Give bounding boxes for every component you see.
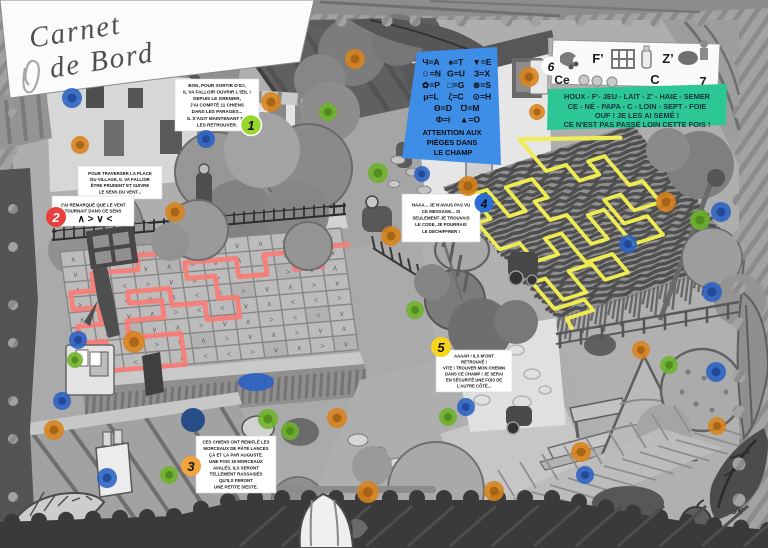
svg-text:OUF ! JE LES AI SEMÉ !: OUF ! JE LES AI SEMÉ ! xyxy=(595,111,679,120)
svg-text:℧=M: ℧=M xyxy=(461,103,480,113)
svg-text:∧: ∧ xyxy=(271,330,277,339)
svg-text:∧: ∧ xyxy=(71,255,77,264)
svg-text:<: < xyxy=(314,296,319,305)
svg-text:<: < xyxy=(195,291,200,300)
svg-text:μ=L: μ=L xyxy=(423,92,439,102)
svg-text:Ce: Ce xyxy=(554,73,570,87)
svg-text:6: 6 xyxy=(548,60,555,74)
svg-text:<: < xyxy=(220,304,225,313)
svg-text:BON, POUR SORTIR D'ICI,: BON, POUR SORTIR D'ICI, xyxy=(188,83,246,88)
svg-text:ATTENTION AUX: ATTENTION AUX xyxy=(422,128,481,137)
svg-text:SEULEMENT JE TROUVAIS: SEULEMENT JE TROUVAIS xyxy=(412,216,469,221)
svg-text:LES RETROUVER.: LES RETROUVER. xyxy=(197,122,237,127)
svg-text:>: > xyxy=(155,340,160,349)
svg-text:Θ=D: Θ=D xyxy=(434,103,452,113)
svg-text:∨: ∨ xyxy=(273,345,279,354)
svg-text:∨: ∨ xyxy=(243,302,249,311)
svg-text:∧: ∧ xyxy=(341,324,347,333)
svg-text:AVALÉS, ILS SERONT: AVALÉS, ILS SERONT xyxy=(213,465,259,470)
svg-text:CE - NÉ - PAPA - C - LOIN - SE: CE - NÉ - PAPA - C - LOIN - SEPT - FOIE xyxy=(568,102,707,111)
svg-text:✿=P: ✿=P xyxy=(422,80,440,90)
svg-text:▲=O: ▲=O xyxy=(460,115,481,125)
svg-text:∨: ∨ xyxy=(152,325,158,334)
svg-text:4: 4 xyxy=(480,197,488,211)
svg-text:З=X: З=X xyxy=(474,69,490,79)
svg-text:TELLEMENT RASSASIÉS: TELLEMENT RASSASIÉS xyxy=(210,472,263,477)
svg-text:⊗=S: ⊗=S xyxy=(473,80,491,90)
svg-text:QU'ILS FERONT: QU'ILS FERONT xyxy=(219,478,253,483)
svg-text:∨: ∨ xyxy=(169,277,175,286)
svg-text:<: < xyxy=(197,306,202,315)
svg-text:∨: ∨ xyxy=(143,264,149,273)
svg-text:>: > xyxy=(321,341,326,350)
svg-text:F’: F’ xyxy=(592,51,604,66)
svg-text:<: < xyxy=(291,298,296,307)
svg-text:>: > xyxy=(312,281,317,290)
svg-text:MORCEAUX DE PÂTÉ LANCÉS: MORCEAUX DE PÂTÉ LANCÉS xyxy=(203,446,268,451)
svg-text:Ч=A: Ч=A xyxy=(422,57,439,67)
svg-text:>: > xyxy=(174,308,179,317)
svg-text:>: > xyxy=(337,294,342,303)
svg-text:RETROUVÉ !: RETROUVÉ ! xyxy=(461,360,487,365)
svg-text:∧: ∧ xyxy=(332,263,338,272)
svg-text:<: < xyxy=(133,357,138,366)
svg-text:DANS CE CHAMP ! JE SERAI: DANS CE CHAMP ! JE SERAI xyxy=(445,372,503,377)
svg-text:ÊTRE PRUDENT ET SUIVRE: ÊTRE PRUDENT ET SUIVRE xyxy=(91,183,150,188)
svg-text:∧: ∧ xyxy=(288,283,294,292)
svg-text:LE SENS DU VENT...: LE SENS DU VENT... xyxy=(99,189,141,194)
svg-text:>: > xyxy=(146,279,151,288)
svg-text:∧: ∧ xyxy=(175,323,181,332)
svg-text:∧: ∧ xyxy=(245,317,251,326)
svg-text:∨: ∨ xyxy=(335,279,341,288)
svg-text:>: > xyxy=(242,287,247,296)
svg-text:∧: ∧ xyxy=(267,300,273,309)
svg-text:UNE FOIS 19 MORCEAUX: UNE FOIS 19 MORCEAUX xyxy=(209,459,263,464)
svg-text:☺=N: ☺=N xyxy=(421,69,441,79)
svg-text:LE CHAMP: LE CHAMP xyxy=(434,148,473,157)
svg-text:UNE PETITE SIESTE.: UNE PETITE SIESTE. xyxy=(214,485,258,490)
svg-text:<: < xyxy=(316,311,321,320)
svg-text:DU VILLAGE, IL VA FALLOIR: DU VILLAGE, IL VA FALLOIR xyxy=(90,177,151,182)
svg-text:>: > xyxy=(286,267,291,276)
svg-text:∧ > ∨ <: ∧ > ∨ < xyxy=(78,214,113,225)
svg-text:G=U: G=U xyxy=(447,69,465,79)
svg-text:EN SÉCURITÉ UNE FOIS DE: EN SÉCURITÉ UNE FOIS DE xyxy=(446,378,502,383)
svg-text:PIÈGES DANS: PIÈGES DANS xyxy=(427,138,478,147)
svg-text:∧: ∧ xyxy=(258,239,264,248)
svg-text:ζ=C: ζ=C xyxy=(448,92,463,102)
svg-text:♠=T: ♠=T xyxy=(449,57,465,67)
svg-text:1: 1 xyxy=(247,118,254,133)
svg-text:DEPUIS LE GRENIER,: DEPUIS LE GRENIER, xyxy=(193,96,241,101)
svg-text:∨: ∨ xyxy=(318,326,324,335)
svg-text:AAAAH ! ILS M'ONT: AAAAH ! ILS M'ONT xyxy=(454,354,494,359)
svg-text:J'AI COMPTÉ 11 CHIENS: J'AI COMPTÉ 11 CHIENS xyxy=(190,101,244,108)
svg-text:<: < xyxy=(227,349,232,358)
svg-text:TOURNAIT DANS CE SENS: TOURNAIT DANS CE SENS xyxy=(65,209,122,214)
svg-text:>: > xyxy=(225,334,230,343)
svg-text:VITE ! TROUVER MON CHEMIN: VITE ! TROUVER MON CHEMIN xyxy=(443,366,505,371)
svg-text:HOUX - F'- JEU - LAIT - Z' - H: HOUX - F'- JEU - LAIT - Z' - HAIE - SEME… xyxy=(564,92,711,101)
svg-text:CES CHIENS ONT RENIFLÉ LES: CES CHIENS ONT RENIFLÉ LES xyxy=(202,440,269,445)
svg-text:DANS LES PARAGES...: DANS LES PARAGES... xyxy=(192,109,243,114)
svg-text:L'AUTRE CÔTÉ...: L'AUTRE CÔTÉ... xyxy=(457,384,491,389)
svg-text:⊙=H: ⊙=H xyxy=(473,92,491,102)
svg-text:5: 5 xyxy=(437,340,445,355)
svg-text:C: C xyxy=(650,72,660,87)
svg-text:IL S'AGIT MAINTENANT DE: IL S'AGIT MAINTENANT DE xyxy=(187,116,247,121)
svg-text:>: > xyxy=(269,315,274,324)
svg-text:LE CODE, JE POURRAIS: LE CODE, JE POURRAIS xyxy=(415,222,467,227)
svg-text:>: > xyxy=(199,321,204,330)
svg-text:<: < xyxy=(204,351,209,360)
svg-text:CE MESSAGE... SI: CE MESSAGE... SI xyxy=(422,209,460,214)
svg-text:∧: ∧ xyxy=(166,262,172,271)
svg-text:Φ=i: Φ=i xyxy=(436,115,450,125)
svg-text:3: 3 xyxy=(187,459,195,474)
svg-text:∨: ∨ xyxy=(73,270,79,279)
svg-text:∨: ∨ xyxy=(343,339,349,348)
svg-text:<: < xyxy=(122,281,127,290)
svg-text:<: < xyxy=(293,313,298,322)
svg-text:∨: ∨ xyxy=(234,241,240,250)
svg-text:□=G: □=G xyxy=(448,80,465,90)
svg-text:2: 2 xyxy=(51,210,60,225)
svg-text:IL VA FALLOIR OUVRIR L'ŒIL !: IL VA FALLOIR OUVRIR L'ŒIL ! xyxy=(183,89,251,94)
svg-text:Z’: Z’ xyxy=(662,51,674,66)
svg-text:∧: ∧ xyxy=(297,343,303,352)
svg-text:>: > xyxy=(250,347,255,356)
svg-text:J'AI REMARQUÉ QUE LE VENT: J'AI REMARQUÉ QUE LE VENT xyxy=(60,202,126,207)
svg-text:ÇÀ ET LÀ PAR AUGUSTE.: ÇÀ ET LÀ PAR AUGUSTE. xyxy=(209,453,263,458)
svg-text:∧: ∧ xyxy=(201,336,207,345)
svg-text:LE DÉCHIFFRER !: LE DÉCHIFFRER ! xyxy=(422,229,460,234)
svg-text:∨: ∨ xyxy=(264,285,270,294)
svg-text:▼=E: ▼=E xyxy=(472,57,492,67)
svg-text:>: > xyxy=(295,328,300,337)
svg-text:∨: ∨ xyxy=(339,309,345,318)
svg-text:POUR TRAVERSER LA PLACE: POUR TRAVERSER LA PLACE xyxy=(88,171,152,176)
svg-text:CE N'EST PAS PASSÉ LOIN CETTE: CE N'EST PAS PASSÉ LOIN CETTE FOIS ! xyxy=(564,120,711,129)
svg-text:∨: ∨ xyxy=(248,332,254,341)
svg-text:HAAA... JE N'AVAIS PAS VU: HAAA... JE N'AVAIS PAS VU xyxy=(412,202,470,207)
